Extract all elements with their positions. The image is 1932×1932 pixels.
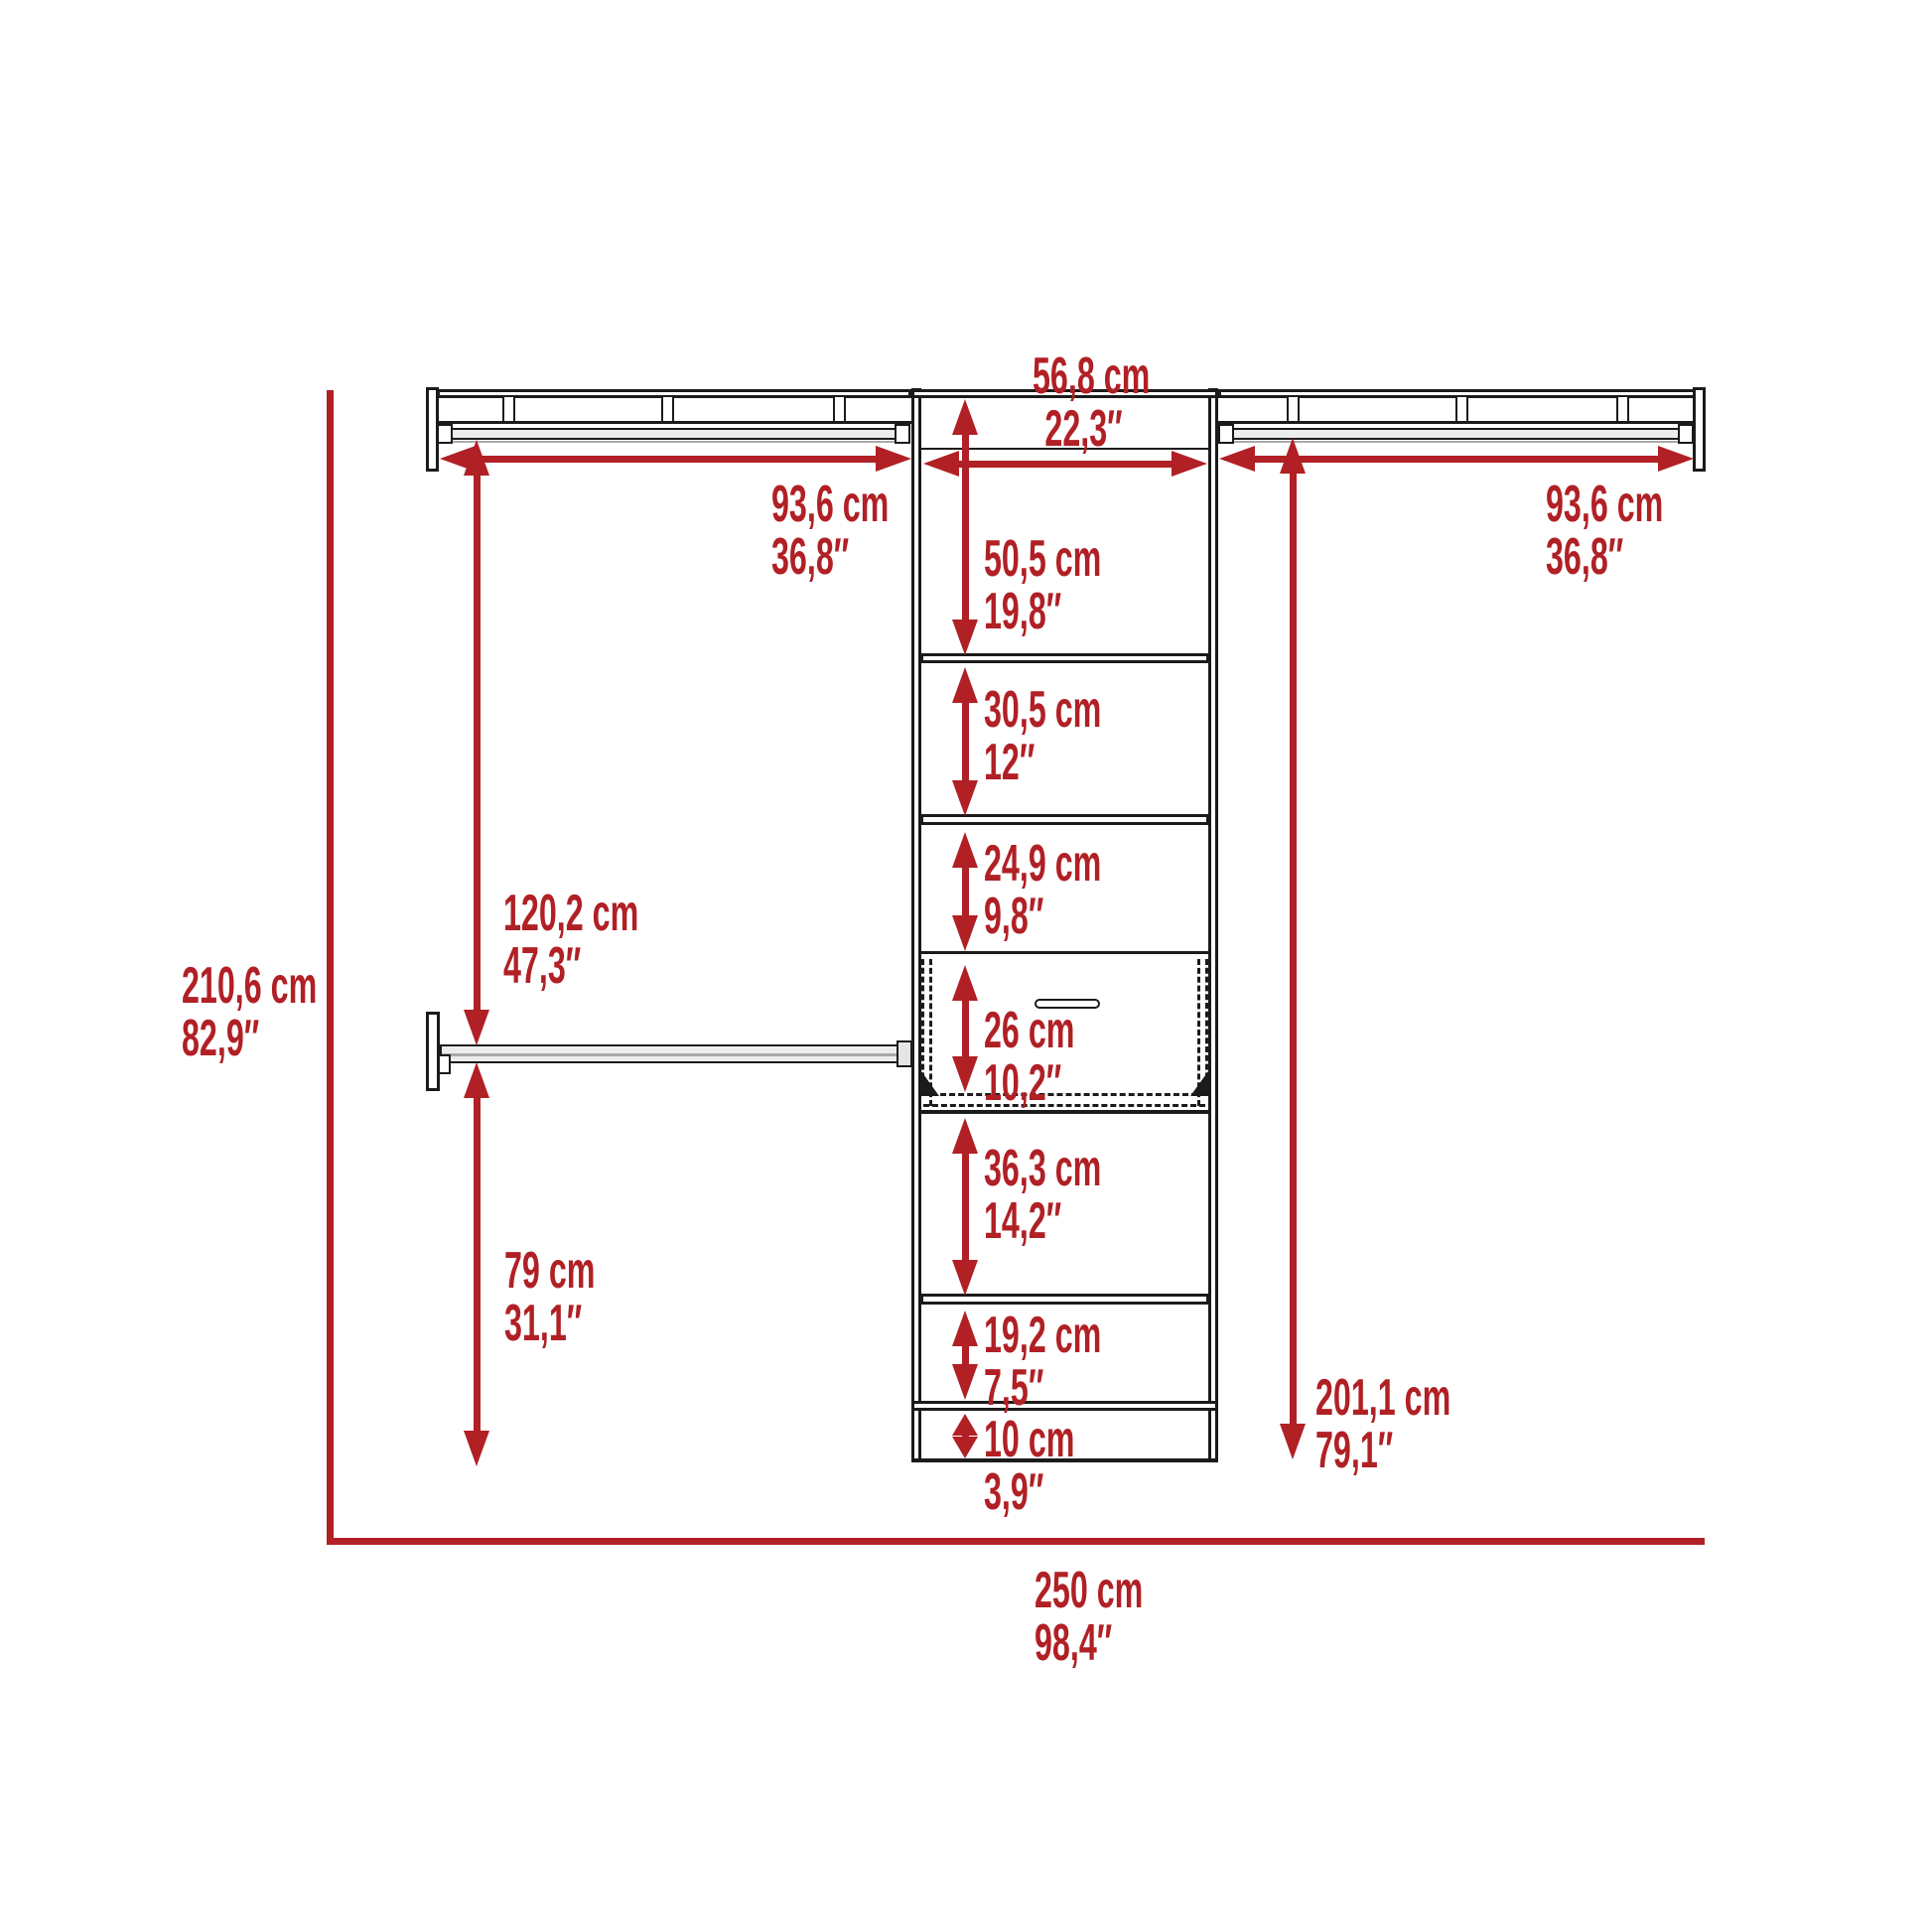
right-shelf-end-panel bbox=[1693, 387, 1706, 472]
dim-label-tower-width: 56,8 cm 22,3″ bbox=[1033, 350, 1150, 456]
dim-value-cm: 56,8 cm bbox=[1033, 350, 1150, 403]
dim-value-inch: 82,9″ bbox=[182, 1013, 317, 1065]
lower-rod-mid-line bbox=[442, 1053, 909, 1056]
dim-label-section-19-2: 19,2 cm 7,5″ bbox=[984, 1310, 1101, 1415]
tower-shelf-line bbox=[920, 951, 1209, 954]
dim-value-inch: 9,8″ bbox=[984, 891, 1101, 943]
dim-value-inch: 47,3″ bbox=[503, 940, 638, 993]
dim-value-inch: 31,1″ bbox=[504, 1298, 595, 1350]
drawer-glide-left bbox=[921, 1071, 939, 1096]
dim-value-cm: 26 cm bbox=[984, 1005, 1074, 1057]
left-hanging-rod bbox=[440, 428, 910, 440]
drawer-bottom-line bbox=[920, 1110, 1209, 1114]
dim-label-upper-rod: 120,2 cm 47,3″ bbox=[503, 888, 638, 993]
dim-value-inch: 7,5″ bbox=[984, 1362, 1101, 1415]
dim-label-total-height: 210,6 cm 82,9″ bbox=[182, 960, 317, 1065]
lower-rod-wall-plate bbox=[426, 1012, 440, 1091]
left-shelf-divider bbox=[502, 395, 515, 423]
lower-rod-bracket bbox=[438, 1054, 451, 1074]
dim-label-section-30-5: 30,5 cm 12″ bbox=[984, 684, 1101, 789]
tower-right-panel bbox=[1208, 388, 1218, 1462]
dim-value-cm: 30,5 cm bbox=[984, 684, 1101, 737]
dim-label-right-rod-height: 201,1 cm 79,1″ bbox=[1315, 1372, 1450, 1477]
left-shelf-divider bbox=[833, 395, 846, 423]
right-rod-bracket bbox=[1218, 424, 1234, 444]
dim-value-inch: 3,9″ bbox=[984, 1466, 1074, 1519]
dim-value-cm: 79 cm bbox=[504, 1245, 595, 1298]
dim-label-lower-rod-floor: 79 cm 31,1″ bbox=[504, 1245, 595, 1350]
dim-value-cm: 36,3 cm bbox=[984, 1143, 1101, 1195]
dim-value-cm: 10 cm bbox=[984, 1414, 1074, 1466]
dim-value-inch: 36,8″ bbox=[1546, 531, 1663, 584]
dim-value-inch: 12″ bbox=[984, 737, 1101, 789]
dim-value-inch: 19,8″ bbox=[984, 586, 1101, 638]
dim-value-inch: 79,1″ bbox=[1315, 1425, 1450, 1477]
closet-dimension-diagram: 56,8 cm 22,3″ 93,6 cm 36,8″ 93,6 cm 36,8… bbox=[0, 0, 1932, 1932]
right-rod-bracket bbox=[1678, 424, 1694, 444]
dim-label-right-shelf-width: 93,6 cm 36,8″ bbox=[1546, 479, 1663, 584]
drawer-glide-right bbox=[1190, 1071, 1208, 1096]
dim-label-section-10: 10 cm 3,9″ bbox=[984, 1414, 1074, 1519]
dim-value-cm: 24,9 cm bbox=[984, 838, 1101, 891]
left-shelf-divider bbox=[661, 395, 674, 423]
lower-rod-bracket bbox=[897, 1040, 912, 1067]
dim-value-inch: 36,8″ bbox=[771, 531, 889, 584]
dim-label-total-width: 250 cm 98,4″ bbox=[1035, 1565, 1143, 1670]
dim-label-section-50-5: 50,5 cm 19,8″ bbox=[984, 533, 1101, 638]
dim-label-section-36-3: 36,3 cm 14,2″ bbox=[984, 1143, 1101, 1248]
dim-value-cm: 50,5 cm bbox=[984, 533, 1101, 586]
dim-value-cm: 201,1 cm bbox=[1315, 1372, 1450, 1425]
right-shelf-divider bbox=[1616, 395, 1629, 423]
dim-value-cm: 120,2 cm bbox=[503, 888, 638, 940]
left-rod-bracket bbox=[895, 424, 910, 444]
right-shelf-divider bbox=[1287, 395, 1300, 423]
dim-value-inch: 14,2″ bbox=[984, 1195, 1101, 1248]
left-rod-bracket bbox=[437, 424, 453, 444]
dim-label-left-shelf-width: 93,6 cm 36,8″ bbox=[771, 479, 889, 584]
dim-value-inch: 98,4″ bbox=[1035, 1617, 1143, 1670]
dim-value-cm: 93,6 cm bbox=[1546, 479, 1663, 531]
dim-value-inch: 22,3″ bbox=[1033, 403, 1150, 456]
dim-label-section-24-9: 24,9 cm 9,8″ bbox=[984, 838, 1101, 943]
left-rod-shadow-line bbox=[440, 441, 910, 443]
dim-value-cm: 19,2 cm bbox=[984, 1310, 1101, 1362]
dim-value-cm: 250 cm bbox=[1035, 1565, 1143, 1617]
dim-label-section-26: 26 cm 10,2″ bbox=[984, 1005, 1074, 1110]
right-shelf-divider bbox=[1455, 395, 1468, 423]
dim-value-cm: 210,6 cm bbox=[182, 960, 317, 1013]
dim-value-cm: 93,6 cm bbox=[771, 479, 889, 531]
dim-value-inch: 10,2″ bbox=[984, 1057, 1074, 1110]
